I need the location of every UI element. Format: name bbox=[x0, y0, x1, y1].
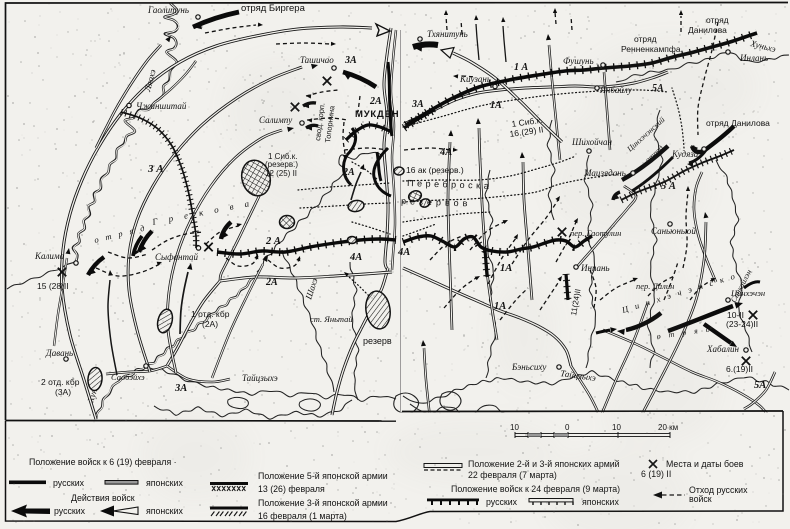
svg-text:Тайцзыхэ: Тайцзыхэ bbox=[242, 373, 278, 383]
svg-text:Киузань: Киузань bbox=[459, 74, 491, 84]
svg-text:1А: 1А bbox=[490, 100, 502, 111]
svg-text:Фушунь: Фушунь bbox=[563, 56, 594, 66]
svg-text:войск: войск bbox=[689, 494, 712, 504]
svg-text:Чжаншитай: Чжаншитай bbox=[136, 101, 187, 111]
svg-text:1 отд. кбр: 1 отд. кбр bbox=[191, 309, 230, 319]
svg-text:Положение 3-й японской армии: Положение 3-й японской армии bbox=[258, 498, 388, 508]
svg-text:2А: 2А bbox=[265, 277, 278, 288]
svg-text:Гаолитунь: Гаолитунь bbox=[147, 5, 189, 15]
svg-text:15 (28)II: 15 (28)II bbox=[37, 281, 69, 291]
svg-text:3 А: 3 А bbox=[147, 163, 164, 175]
svg-text:13 (26) февраля: 13 (26) февраля bbox=[258, 484, 325, 494]
svg-text:Положение 5-й японской армии: Положение 5-й японской армии bbox=[258, 471, 388, 481]
svg-text:4А: 4А bbox=[397, 247, 410, 258]
svg-text:Данилова: Данилова bbox=[688, 25, 727, 35]
svg-text:1 А: 1 А bbox=[514, 62, 529, 73]
svg-text:Действия войск: Действия войск bbox=[71, 493, 135, 503]
svg-text:МУКДЕН: МУКДЕН bbox=[355, 109, 399, 120]
svg-text:отряд: отряд bbox=[706, 15, 729, 25]
svg-text:16 февраля (1 марта): 16 февраля (1 марта) bbox=[258, 511, 347, 521]
svg-text:3А: 3А bbox=[411, 99, 424, 110]
svg-text:4А: 4А bbox=[439, 147, 452, 158]
svg-text:Калима: Калима bbox=[34, 251, 65, 261]
svg-text:русских: русских bbox=[486, 497, 518, 507]
svg-text:1А: 1А bbox=[500, 263, 512, 274]
svg-text:резерв: резерв bbox=[363, 336, 392, 346]
svg-text:6.(19)II: 6.(19)II bbox=[726, 364, 753, 374]
svg-text:(3А): (3А) bbox=[55, 387, 71, 397]
svg-text:0: 0 bbox=[565, 423, 570, 432]
svg-text:Тхянитунь: Тхянитунь bbox=[427, 29, 468, 39]
svg-text:2 А: 2 А bbox=[265, 236, 281, 247]
svg-text:2 отд. кбр: 2 отд. кбр bbox=[41, 377, 80, 387]
svg-text:ст. Яньтай: ст. Яньтай bbox=[310, 314, 353, 324]
svg-text:2А: 2А bbox=[369, 96, 382, 107]
svg-text:5А: 5А bbox=[754, 380, 766, 391]
svg-text:3А: 3А bbox=[174, 383, 187, 394]
svg-text:японских: японских bbox=[146, 506, 183, 516]
svg-text:Давань: Давань bbox=[45, 348, 73, 358]
svg-text:русских: русских bbox=[53, 478, 85, 488]
svg-text:отряд Биргера: отряд Биргера bbox=[241, 3, 306, 14]
svg-text:Инпань: Инпань bbox=[580, 263, 610, 273]
svg-text:16 ак (резерв.): 16 ак (резерв.) bbox=[406, 165, 464, 175]
svg-text:3А: 3А bbox=[344, 55, 357, 66]
svg-text:4А: 4А bbox=[349, 252, 362, 263]
svg-text:русских: русских bbox=[54, 506, 86, 516]
svg-text:(2А): (2А) bbox=[202, 319, 218, 329]
svg-text:(23-24)II: (23-24)II bbox=[726, 319, 758, 329]
svg-text:Саобэйхэ: Саобэйхэ bbox=[111, 372, 145, 382]
